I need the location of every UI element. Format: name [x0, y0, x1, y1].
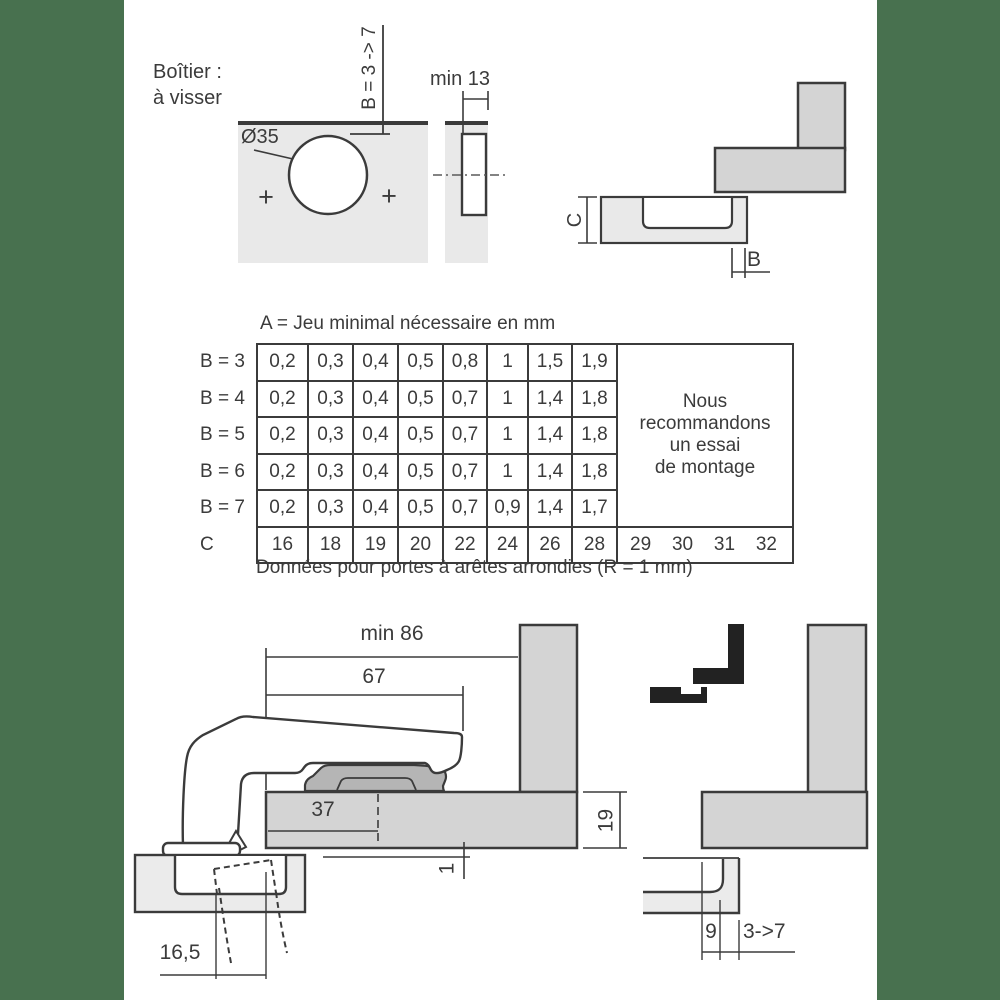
recommendation-note: Nous recommandons un essai de montage [617, 344, 793, 527]
table-cell: 0,8 [443, 344, 487, 381]
table-cell: 26 [528, 527, 572, 564]
c-extra-value: 31 [714, 534, 735, 556]
row-label: B = 6 [200, 454, 257, 491]
cabinet-top-panel [715, 148, 845, 192]
table-cell: 18 [308, 527, 353, 564]
dim-37-label: 37 [300, 798, 346, 821]
dim-b-label: B [747, 248, 761, 271]
table-cell: 1,4 [528, 417, 572, 454]
cup-recess [175, 856, 286, 894]
table-cell: 0,3 [308, 417, 353, 454]
table-cell: 28 [572, 527, 617, 564]
dim-9-label: 9 [694, 920, 728, 943]
table-cell: 1 [487, 417, 528, 454]
table-cell: 0,3 [308, 381, 353, 418]
table-cell: 0,5 [398, 381, 443, 418]
table-cell: 22 [443, 527, 487, 564]
table-cell: 0,5 [398, 490, 443, 527]
table-cell: 1,8 [572, 417, 617, 454]
cabinet-corner-icon [693, 624, 744, 684]
table-cell-extra: 29 30 31 32 [617, 527, 793, 564]
rebated-door-section [643, 858, 739, 913]
table-cell: 0,7 [443, 490, 487, 527]
table-cell: 0,2 [257, 381, 308, 418]
dim-min86-label: min 86 [328, 622, 456, 645]
cup-distance-label: B = 3 -> 7 [359, 9, 379, 127]
c-extra-value: 29 [630, 534, 651, 556]
table-cell: 0,2 [257, 454, 308, 491]
c-extra-value: 30 [672, 534, 693, 556]
c-extra-value: 32 [756, 534, 777, 556]
table-cell: 0,3 [308, 454, 353, 491]
table-cell: 0,3 [308, 490, 353, 527]
table-cell: 0,2 [257, 344, 308, 381]
screw-hole-marker-left: + [253, 184, 279, 210]
min-width-label: min 13 [425, 68, 495, 90]
door-rebate-line [643, 859, 723, 892]
table-cell: 0,7 [443, 454, 487, 491]
row-label: B = 4 [200, 381, 257, 418]
dim-1-label: 1 [436, 849, 457, 889]
cup-hole-35 [289, 136, 367, 214]
catalog-page: Boîtier : à visser B = 3 -> 7 min 13 Ø35… [0, 0, 1000, 1000]
table-cell: 0,7 [443, 381, 487, 418]
table-row-c: C 16 18 19 20 22 24 26 28 29 30 31 32 [200, 527, 793, 564]
row-label: B = 7 [200, 490, 257, 527]
table-cell: 1 [487, 344, 528, 381]
inset-door-icon [650, 687, 707, 703]
diameter-label: Ø35 [241, 126, 279, 148]
table-cell: 1,4 [528, 490, 572, 527]
table-cell: 1,8 [572, 454, 617, 491]
table-cell: 0,4 [353, 454, 398, 491]
table-cell: 1,4 [528, 381, 572, 418]
table-cell: 19 [353, 527, 398, 564]
table-cell: 24 [487, 527, 528, 564]
table-cell: 0,5 [398, 417, 443, 454]
table-cell: 1,7 [572, 490, 617, 527]
dim-range-label: 3->7 [743, 920, 786, 943]
drilling-pattern-side-view [433, 91, 505, 263]
clearance-table: B = 3 0,2 0,3 0,4 0,5 0,8 1 1,5 1,9 Nous… [200, 343, 794, 564]
cabinet-side-panel [798, 83, 845, 150]
table-cell: 20 [398, 527, 443, 564]
table-cell: 1,8 [572, 381, 617, 418]
table-cell: 1 [487, 454, 528, 491]
screw-hole-marker-right: + [376, 183, 402, 209]
table-cell: 0,4 [353, 490, 398, 527]
row-label: C [200, 527, 257, 564]
table-cell: 0,5 [398, 454, 443, 491]
dim-19-label: 19 [595, 790, 616, 852]
table-cell: 0,2 [257, 417, 308, 454]
row-label: B = 5 [200, 417, 257, 454]
door-recess [643, 198, 732, 228]
table-cell: 0,4 [353, 417, 398, 454]
table-cell: 16 [257, 527, 308, 564]
row-label: B = 3 [200, 344, 257, 381]
table-cell: 0,3 [308, 344, 353, 381]
inset-application-section [643, 624, 867, 960]
dim-67-label: 67 [342, 665, 406, 688]
table-cell: 0,5 [398, 344, 443, 381]
product-type-label-line1: Boîtier : [153, 61, 222, 83]
dim-c-label: C [564, 200, 584, 240]
table-cell: 0,9 [487, 490, 528, 527]
table-cell: 0,7 [443, 417, 487, 454]
cabinet-side-panel [520, 625, 577, 792]
table-title: A = Jeu minimal nécessaire en mm [260, 313, 555, 334]
product-type-label-line2: à visser [153, 87, 222, 109]
table-row: B = 3 0,2 0,3 0,4 0,5 0,8 1 1,5 1,9 Nous… [200, 344, 793, 381]
table-cell: 1 [487, 381, 528, 418]
table-cell: 1,5 [528, 344, 572, 381]
cabinet-side-panel [808, 625, 866, 792]
table-cell: 0,4 [353, 344, 398, 381]
table-cell: 0,4 [353, 381, 398, 418]
table-cell: 1,4 [528, 454, 572, 491]
corner-cross-section [578, 83, 845, 278]
dim-165-label: 16,5 [152, 941, 208, 964]
table-cell: 1,9 [572, 344, 617, 381]
table-cell: 0,2 [257, 490, 308, 527]
cabinet-bottom-panel [702, 792, 867, 848]
